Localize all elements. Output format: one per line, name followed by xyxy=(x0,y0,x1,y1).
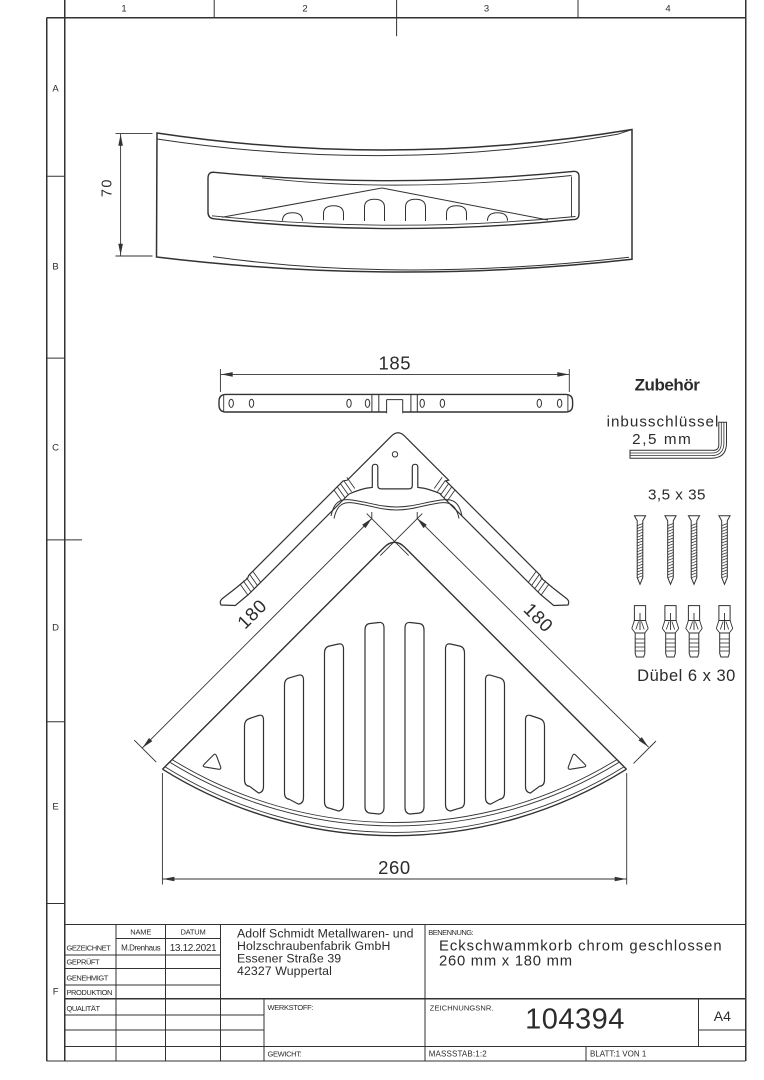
svg-text:260 mm x 180 mm: 260 mm x 180 mm xyxy=(439,954,573,970)
svg-text:1: 1 xyxy=(121,4,126,15)
svg-text:DATUM: DATUM xyxy=(180,928,205,937)
svg-text:70: 70 xyxy=(100,178,116,197)
svg-text:inbusschlüssel: inbusschlüssel xyxy=(607,414,720,431)
svg-text:180: 180 xyxy=(233,595,271,633)
svg-text:WERKSTOFF:: WERKSTOFF: xyxy=(268,1003,314,1012)
svg-text:B: B xyxy=(52,262,58,273)
svg-text:3,5 x 35: 3,5 x 35 xyxy=(648,487,706,504)
svg-text:2: 2 xyxy=(302,4,307,15)
svg-text:A4: A4 xyxy=(714,1008,731,1024)
svg-text:42327 Wuppertal: 42327 Wuppertal xyxy=(237,964,332,978)
svg-text:E: E xyxy=(52,802,58,813)
svg-text:185: 185 xyxy=(378,353,411,374)
svg-text:4: 4 xyxy=(665,4,670,15)
svg-text:ZEICHNUNGSNR.: ZEICHNUNGSNR. xyxy=(430,1004,494,1013)
svg-text:GEWICHT:: GEWICHT: xyxy=(268,1050,302,1059)
svg-text:BENENNUNG:: BENENNUNG: xyxy=(428,928,473,937)
svg-text:3: 3 xyxy=(484,4,489,15)
svg-text:2,5 mm: 2,5 mm xyxy=(632,431,692,448)
svg-text:BLATT:1 VON 1: BLATT:1 VON 1 xyxy=(590,1050,647,1059)
svg-text:A: A xyxy=(52,84,59,95)
svg-text:GEPRÜFT: GEPRÜFT xyxy=(67,958,101,967)
svg-text:C: C xyxy=(52,443,59,454)
svg-text:M.Drenhaus: M.Drenhaus xyxy=(121,943,161,952)
svg-text:Dübel 6 x 30: Dübel 6 x 30 xyxy=(637,667,736,685)
svg-text:QUALITÄT: QUALITÄT xyxy=(67,1004,101,1013)
svg-text:13.12.2021: 13.12.2021 xyxy=(170,943,217,954)
svg-text:Eckschwammkorb chrom geschloss: Eckschwammkorb chrom geschlossen xyxy=(439,939,723,955)
svg-text:104394: 104394 xyxy=(525,1004,625,1036)
svg-text:PRODUKTION: PRODUKTION xyxy=(67,988,113,997)
svg-text:D: D xyxy=(52,623,59,634)
svg-text:NAME: NAME xyxy=(130,928,151,937)
svg-text:GENEHMIGT: GENEHMIGT xyxy=(67,974,109,983)
svg-text:260: 260 xyxy=(378,857,411,878)
svg-text:F: F xyxy=(53,987,59,998)
svg-text:Zubehör: Zubehör xyxy=(635,376,701,395)
svg-text:MASSSTAB:1:2: MASSSTAB:1:2 xyxy=(429,1050,488,1059)
svg-text:GEZEICHNET: GEZEICHNET xyxy=(67,943,112,952)
